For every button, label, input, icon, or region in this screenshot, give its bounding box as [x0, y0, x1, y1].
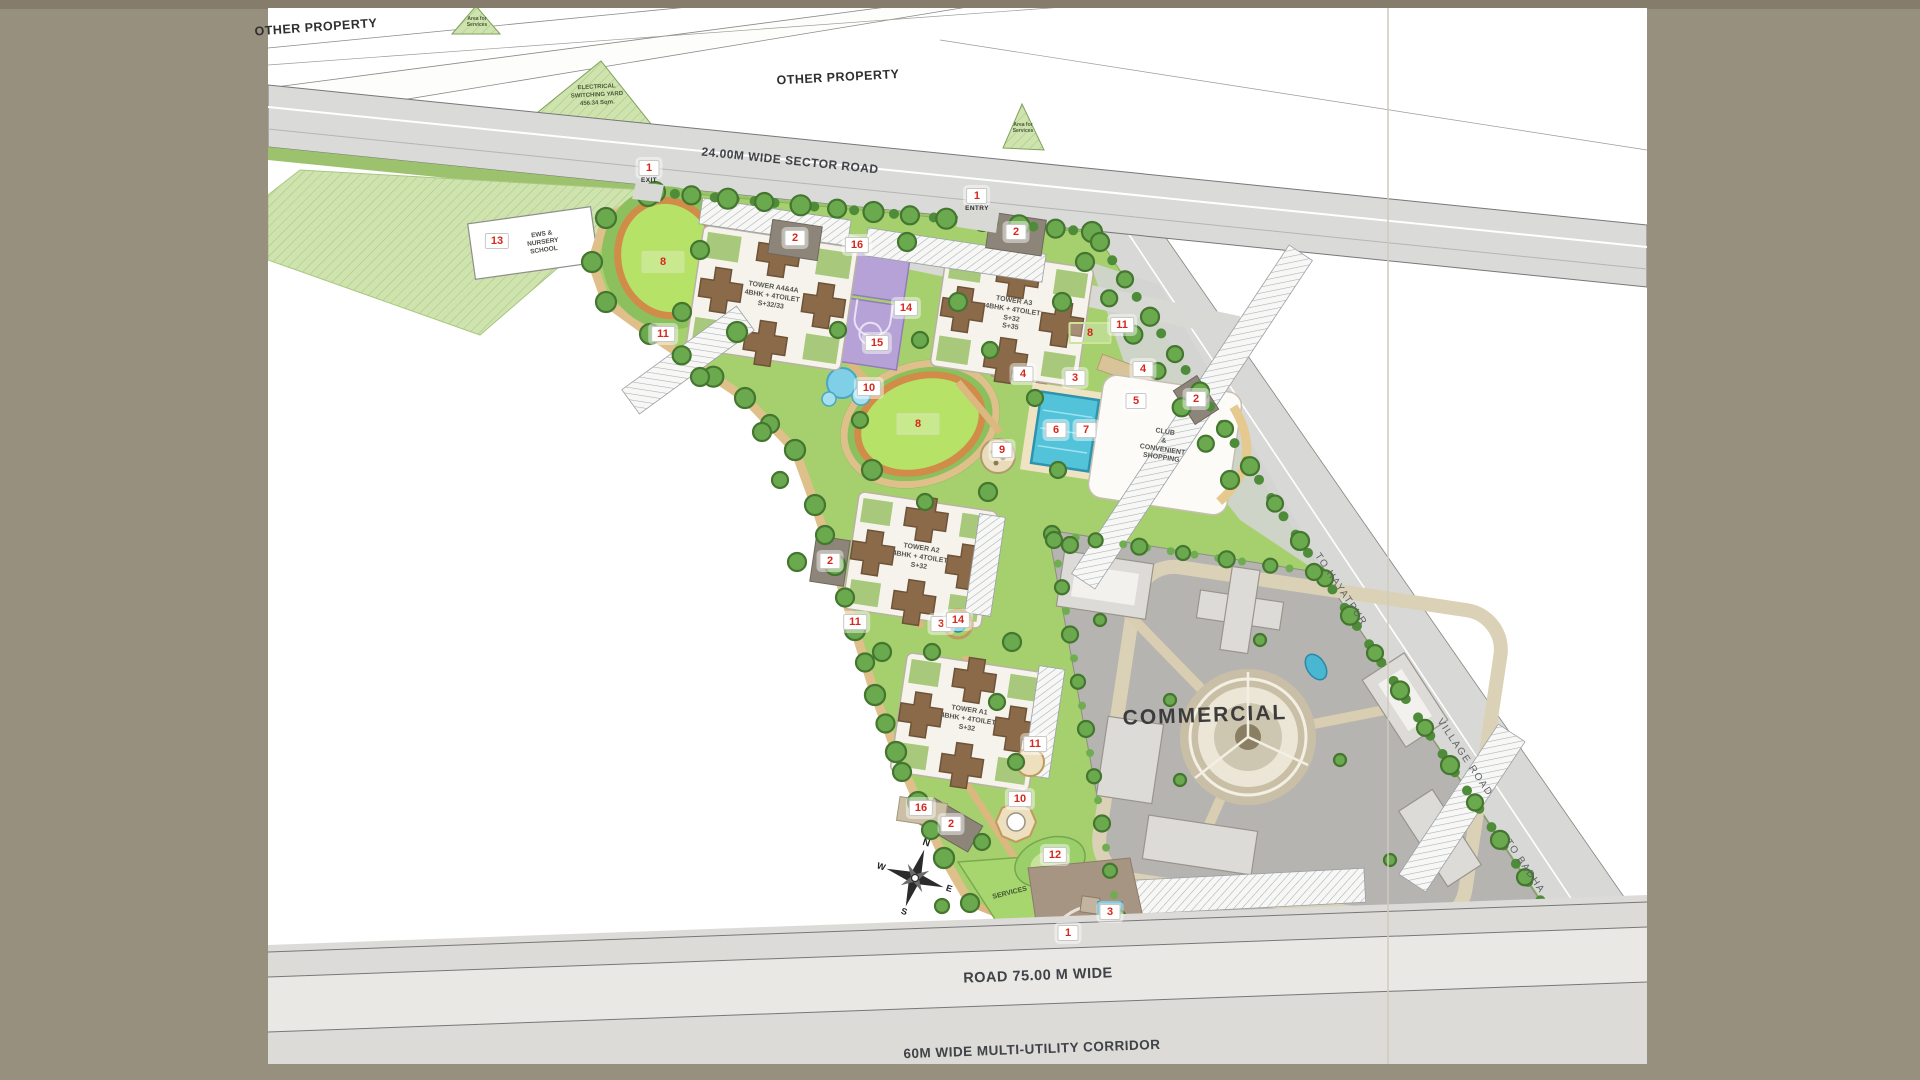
site-plan-stage: OTHER PROPERTY OTHER PROPERTY 24.00M WID…	[0, 0, 1920, 1080]
marker-11: 11	[1110, 317, 1134, 333]
marker-16: 16	[909, 800, 933, 816]
marker-12: 12	[1043, 847, 1067, 863]
marker-1: 1EXIT	[639, 160, 660, 184]
marker-1: 1	[1058, 925, 1079, 941]
commercial-plaza	[1180, 669, 1316, 805]
marker-11: 11	[843, 614, 867, 630]
marker-2: 2	[1186, 391, 1207, 407]
exit-gate	[632, 182, 664, 202]
marker-4: 4	[1013, 366, 1034, 382]
marker-14: 14	[894, 300, 918, 316]
area-for-services-label-mid: Area for Services	[1013, 122, 1034, 135]
marker-6: 6	[1046, 422, 1067, 438]
gatehouse	[1080, 896, 1100, 914]
marker-2: 2	[820, 553, 841, 569]
club-label: CLUB & CONVENIENT SHOPPING	[1138, 425, 1189, 466]
marker-2: 2	[785, 230, 806, 246]
marker-10: 10	[1008, 791, 1032, 807]
marker-2: 2	[1006, 224, 1027, 240]
marker-11: 11	[651, 326, 675, 342]
marker-3: 3	[1065, 370, 1086, 386]
marker-5: 5	[1126, 393, 1147, 409]
pavilion-octagon	[996, 802, 1036, 842]
mat-top-strip	[0, 0, 1920, 9]
marker-9: 9	[992, 442, 1013, 458]
marker-8: 8	[897, 413, 940, 435]
marker-4: 4	[1133, 361, 1154, 377]
marker-2: 2	[941, 816, 962, 832]
marker-10: 10	[857, 380, 881, 396]
site-plan-drawing	[0, 0, 1920, 1080]
marker-16: 16	[845, 237, 869, 253]
marker-11: 11	[1023, 736, 1047, 752]
marker-8: 8	[1069, 322, 1112, 344]
school-label: EWS & NURSERY SCHOOL	[526, 229, 561, 258]
marker-7: 7	[1076, 422, 1097, 438]
marker-1: 1ENTRY	[965, 188, 989, 212]
electrical-yard-label: ELECTRICAL SWITCHING YARD 456.34 Sqm.	[570, 83, 623, 109]
marker-3: 3	[1100, 904, 1121, 920]
marker-14: 14	[946, 612, 970, 628]
marker-15: 15	[865, 335, 889, 351]
marker-8: 8	[642, 251, 685, 273]
area-for-services-label-top: Area for Services	[467, 16, 488, 29]
marker-13: 13	[485, 233, 509, 249]
